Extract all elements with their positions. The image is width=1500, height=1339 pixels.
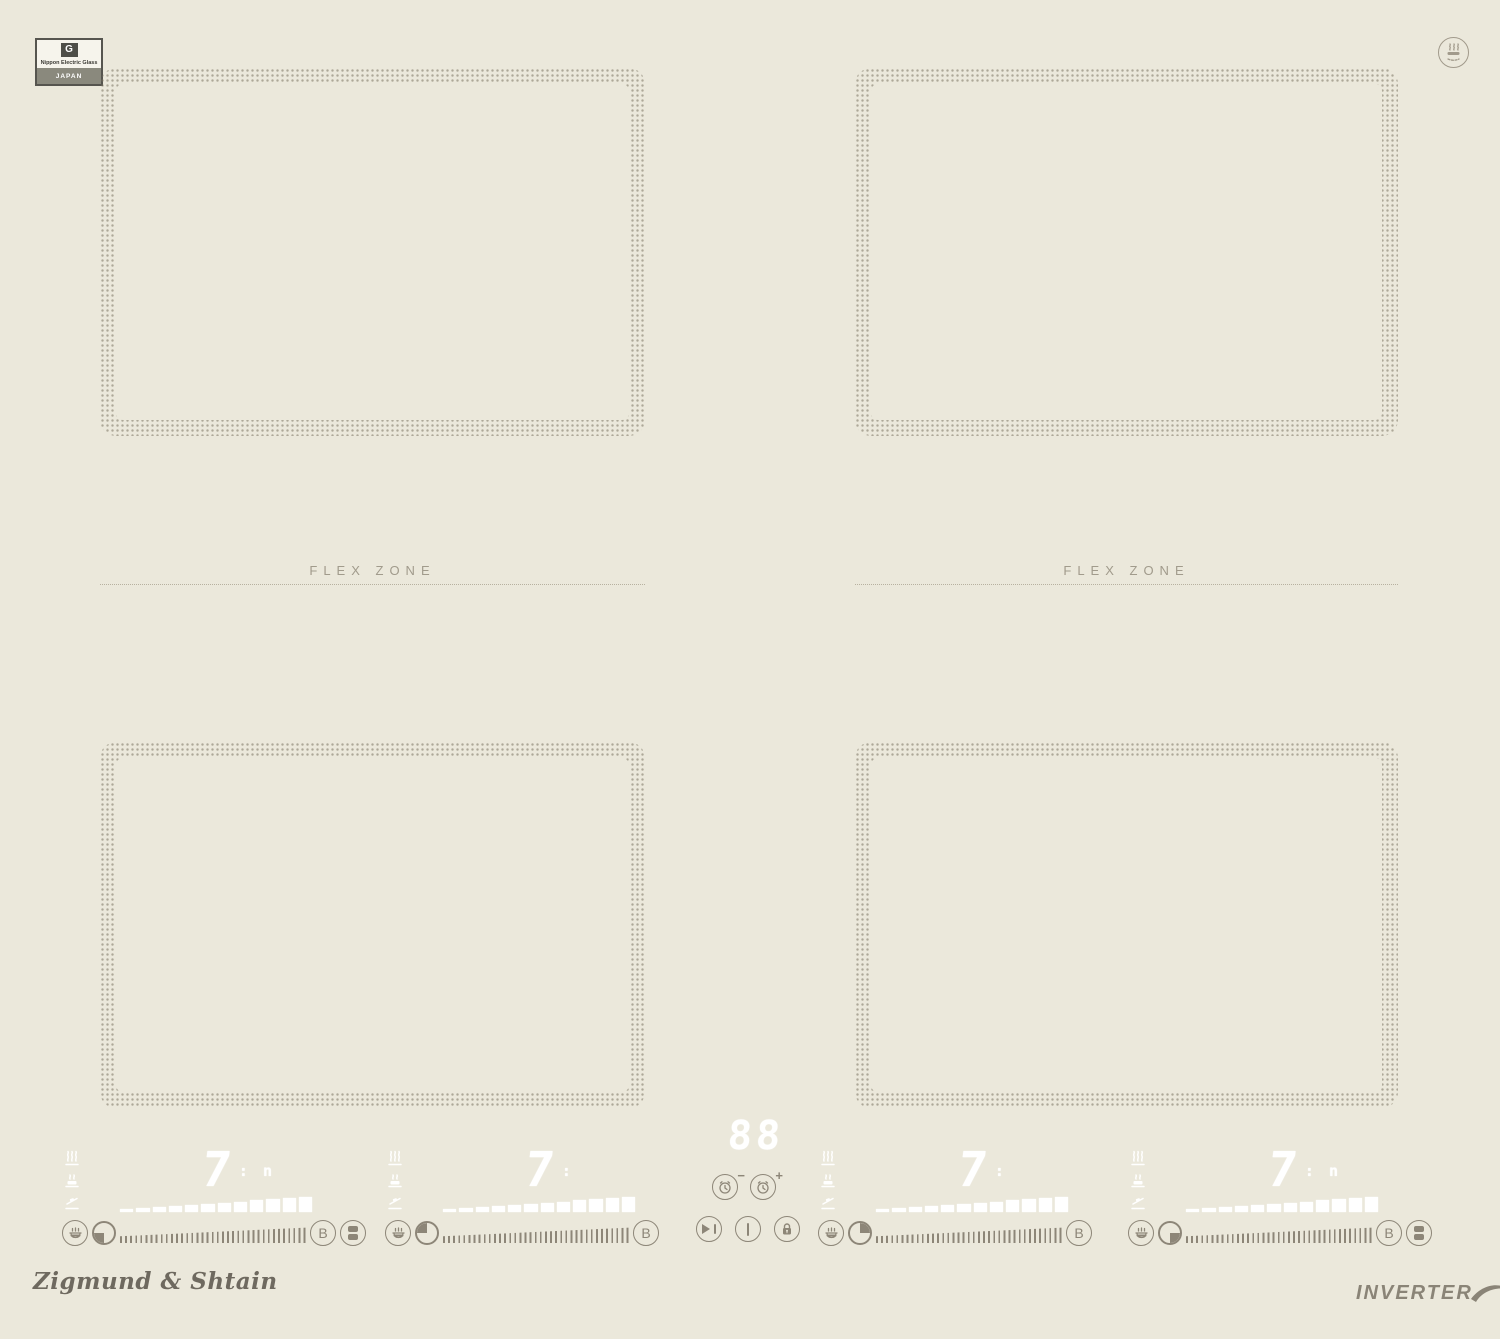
burner-controls-front-left: 7 : n B — [62, 1150, 368, 1262]
bridge-icon — [348, 1226, 358, 1240]
cooktop-surface: G Nippon Electric Glass JAPAN FLEX ZONE … — [0, 0, 1500, 1339]
certification-badge: G Nippon Electric Glass JAPAN — [35, 38, 103, 86]
melt-icon — [1130, 1194, 1146, 1210]
power-level-value: 7 — [1265, 1146, 1300, 1194]
power-display: 7 : n — [1268, 1146, 1341, 1194]
bridge-button[interactable] — [1406, 1220, 1432, 1246]
zone-position-indicator — [848, 1221, 872, 1245]
power-bar-graph — [1186, 1196, 1378, 1212]
power-bar-graph — [876, 1196, 1068, 1212]
keep-warm-button[interactable] — [62, 1220, 88, 1246]
alarm-clock-icon — [717, 1179, 733, 1195]
timer-display: 88 — [689, 1116, 824, 1156]
power-display: 7 : — [958, 1146, 1007, 1194]
timer-minus-button[interactable] — [712, 1174, 738, 1200]
power-slider[interactable] — [443, 1227, 629, 1243]
flex-zone-label-right: FLEX ZONE — [855, 552, 1398, 585]
central-controls: 88 − + — [690, 1112, 822, 1256]
induction-pan-symbol-icon — [1438, 37, 1469, 68]
zone-position-indicator — [92, 1221, 116, 1245]
boost-button[interactable]: B — [1066, 1220, 1092, 1246]
melt-icon — [820, 1194, 836, 1210]
power-display: 7 : — [525, 1146, 574, 1194]
power-bar-graph — [443, 1196, 635, 1212]
timer-plus-button[interactable] — [750, 1174, 776, 1200]
child-lock-button[interactable] — [774, 1216, 800, 1242]
inverter-swoosh-icon — [1469, 1281, 1500, 1305]
power-display: 7 : n — [202, 1146, 275, 1194]
cooking-zone-front-right — [855, 742, 1398, 1108]
boil-icon — [64, 1150, 80, 1166]
melt-icon — [64, 1194, 80, 1210]
power-level-value: 7 — [522, 1146, 557, 1194]
inverter-label: INVERTER — [1356, 1282, 1473, 1305]
badge-country-text: JAPAN — [37, 68, 101, 84]
power-slider[interactable] — [1186, 1227, 1372, 1243]
boost-button[interactable]: B — [310, 1220, 336, 1246]
cook-mode-icons — [820, 1150, 836, 1210]
pause-play-button[interactable] — [696, 1216, 722, 1242]
zone-position-indicator — [415, 1221, 439, 1245]
keep-warm-button[interactable] — [385, 1220, 411, 1246]
cooking-zone-rear-left — [100, 68, 645, 436]
burner-controls-rear-right: 7 : B — [818, 1150, 1094, 1262]
cooking-zone-rear-right — [855, 68, 1398, 436]
burner-controls-front-right: 7 : n B — [1128, 1150, 1434, 1262]
cook-mode-icons — [387, 1150, 403, 1210]
cooking-zone-front-left — [100, 742, 645, 1108]
boost-button[interactable]: B — [1376, 1220, 1402, 1246]
inverter-logo: INVERTER — [1356, 1281, 1500, 1305]
bridge-icon — [1414, 1226, 1424, 1240]
bridge-button[interactable] — [340, 1220, 366, 1246]
power-level-value: 7 — [199, 1146, 234, 1194]
boil-icon — [1130, 1150, 1146, 1166]
simmer-icon — [387, 1172, 403, 1188]
cook-mode-icons — [1130, 1150, 1146, 1210]
power-bar-graph — [120, 1196, 312, 1212]
cook-mode-icons — [64, 1150, 80, 1210]
lock-icon — [780, 1222, 794, 1237]
display-suffix: : n — [239, 1162, 275, 1180]
neg-logo-icon: G — [61, 43, 78, 57]
plus-sign: + — [775, 1168, 783, 1183]
alarm-clock-icon — [755, 1179, 771, 1195]
minus-sign: − — [737, 1168, 745, 1183]
boil-icon — [387, 1150, 403, 1166]
power-level-value: 7 — [955, 1146, 990, 1194]
power-slider[interactable] — [876, 1227, 1062, 1243]
melt-icon — [387, 1194, 403, 1210]
display-suffix: : — [562, 1162, 574, 1180]
power-slider[interactable] — [120, 1227, 306, 1243]
simmer-icon — [1130, 1172, 1146, 1188]
keep-warm-button[interactable] — [1128, 1220, 1154, 1246]
play-pause-icon — [702, 1223, 716, 1235]
display-suffix: : — [995, 1162, 1007, 1180]
brand-logo: Zigmund & Shtain — [33, 1268, 278, 1295]
simmer-icon — [820, 1172, 836, 1188]
flex-zone-label-left: FLEX ZONE — [100, 552, 645, 585]
power-icon — [747, 1223, 750, 1236]
zone-position-indicator — [1158, 1221, 1182, 1245]
burner-controls-rear-left: 7 : B — [385, 1150, 661, 1262]
display-suffix: : n — [1305, 1162, 1341, 1180]
power-button[interactable] — [735, 1216, 761, 1242]
badge-maker-text: Nippon Electric Glass — [41, 60, 98, 66]
simmer-icon — [64, 1172, 80, 1188]
boil-icon — [820, 1150, 836, 1166]
boost-button[interactable]: B — [633, 1220, 659, 1246]
